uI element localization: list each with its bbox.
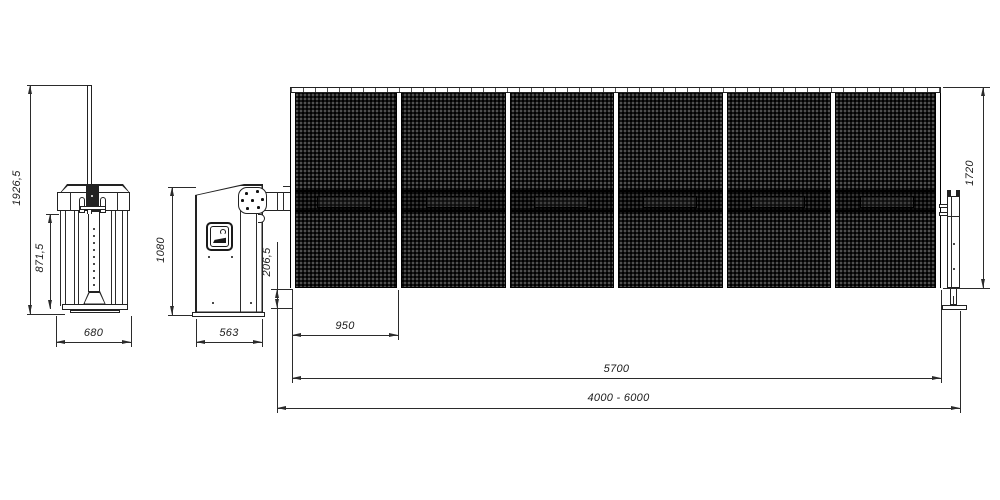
dim-label-side-base: 680	[56, 327, 131, 339]
frame-line	[78, 211, 79, 306]
panel-divider	[505, 93, 511, 288]
arrowhead	[122, 340, 131, 344]
post-bolt	[953, 268, 955, 270]
boom-plate-outline	[534, 196, 588, 208]
flange-bolt	[256, 190, 259, 193]
frame-line	[122, 211, 123, 306]
catch-post-line	[951, 196, 952, 288]
head-line	[117, 192, 118, 211]
column-hole	[93, 284, 95, 286]
post-base-plate	[942, 305, 967, 310]
release-hook	[258, 214, 265, 223]
technical-drawing-canvas: 1926,5	[0, 0, 1000, 500]
post-bolt	[953, 243, 955, 245]
extension-line	[943, 288, 990, 289]
rivet	[208, 256, 210, 258]
catch-tab	[956, 190, 960, 196]
fence-right-edge	[935, 93, 941, 288]
dim-label-cabinet-width: 563	[196, 327, 262, 339]
lift-column	[88, 211, 100, 292]
panel-divider	[830, 93, 836, 288]
head-line	[70, 192, 71, 211]
frame-line	[74, 211, 75, 306]
arrowhead	[170, 306, 174, 315]
extension-line	[46, 214, 59, 215]
arrowhead	[196, 340, 205, 344]
brand-logo-inner-frame	[210, 226, 229, 247]
arrowhead	[389, 333, 398, 337]
cabinet-base	[192, 312, 265, 317]
column-hole	[93, 235, 95, 237]
arrowhead	[932, 376, 941, 380]
extension-line	[398, 290, 399, 340]
column-hole	[93, 242, 95, 244]
arrowhead	[981, 279, 985, 288]
column-hole	[93, 277, 95, 279]
catch-post-body	[947, 196, 960, 288]
flange-bolt	[245, 192, 248, 195]
rivet	[250, 302, 252, 304]
column-foot-face	[85, 293, 105, 304]
arrowhead	[48, 300, 52, 309]
dim-line-side-base	[56, 342, 131, 343]
boom-plate-outline	[860, 196, 914, 208]
arrowhead	[277, 406, 286, 410]
extension-line	[941, 290, 942, 383]
boom-plate-outline	[751, 196, 805, 208]
arrowhead	[170, 187, 174, 196]
base-strip	[70, 310, 120, 313]
dim-line-fence-height	[983, 87, 984, 288]
brand-emblem-curl-icon	[220, 229, 226, 235]
boom-plate-outline	[317, 196, 371, 208]
frame-line	[127, 211, 128, 306]
dim-line-fence-length	[292, 378, 941, 379]
post-anchor-line	[953, 296, 954, 305]
flange-bolt	[241, 199, 244, 202]
arrowhead	[275, 289, 279, 298]
arrowhead	[56, 340, 65, 344]
boom-bracket-line	[283, 192, 284, 211]
dim-line-cabinet-height	[172, 187, 173, 315]
extension-line	[960, 311, 961, 413]
arrowhead	[275, 299, 279, 308]
arrowhead	[951, 406, 960, 410]
fork-right	[100, 197, 106, 213]
catch-lug	[939, 212, 948, 216]
extension-line	[27, 314, 65, 315]
extension-line	[131, 316, 132, 347]
flange-bolt	[251, 199, 254, 202]
extension-line	[168, 315, 193, 316]
panel-divider	[722, 93, 728, 288]
dim-label-column-height: 871,5	[34, 228, 46, 288]
arrowhead	[292, 376, 301, 380]
column-hole	[93, 228, 95, 230]
rivet	[212, 302, 214, 304]
frame-line	[115, 211, 116, 306]
flange-bolt	[246, 207, 249, 210]
catch-post-notch	[947, 216, 960, 217]
extension-line	[27, 85, 89, 86]
dim-label-cabinet-height: 1080	[155, 220, 167, 280]
extension-line	[271, 289, 293, 290]
dim-line-column-height	[50, 214, 51, 309]
arrowhead	[981, 87, 985, 96]
dim-line-panel-width	[292, 335, 398, 336]
arrowhead	[292, 333, 301, 337]
arrowhead	[253, 340, 262, 344]
arrowhead	[28, 305, 32, 314]
fork-left	[79, 197, 85, 213]
dim-label-opening-range: 4000 - 6000	[277, 392, 960, 404]
dim-label-overall-height: 1926,5	[11, 158, 23, 218]
boom-plate-outline	[643, 196, 697, 208]
arrowhead	[48, 214, 52, 223]
boom-plate-outline	[426, 196, 480, 208]
rivet	[231, 256, 233, 258]
dim-line-opening-range	[277, 408, 960, 409]
fence-left-edge	[290, 93, 296, 288]
column-hole	[93, 270, 95, 272]
flange-bolt	[261, 198, 264, 201]
extension-line	[262, 319, 263, 347]
extension-line	[168, 187, 196, 188]
arrowhead	[28, 85, 32, 94]
boom-bracket-line	[277, 192, 278, 211]
panel-divider	[396, 93, 402, 288]
dim-line-overall-height	[30, 85, 31, 314]
panel-divider	[613, 93, 619, 288]
frame-line	[65, 211, 66, 306]
flange-bolt	[257, 206, 260, 209]
dim-label-fence-length: 5700	[292, 363, 941, 375]
dim-label-fence-height: 1720	[964, 143, 976, 203]
catch-lug	[939, 204, 948, 208]
column-hole	[93, 256, 95, 258]
dim-label-ground-clearance: 206,5	[261, 232, 273, 292]
column-hole	[93, 249, 95, 251]
frame-line	[60, 211, 61, 306]
dim-label-panel-width: 950	[292, 320, 398, 332]
extension-line	[271, 308, 293, 309]
frame-line	[111, 211, 112, 306]
dim-line-ground-clearance	[277, 242, 278, 413]
column-hole	[93, 263, 95, 265]
catch-tab	[947, 190, 951, 196]
fork-bar	[80, 206, 106, 210]
